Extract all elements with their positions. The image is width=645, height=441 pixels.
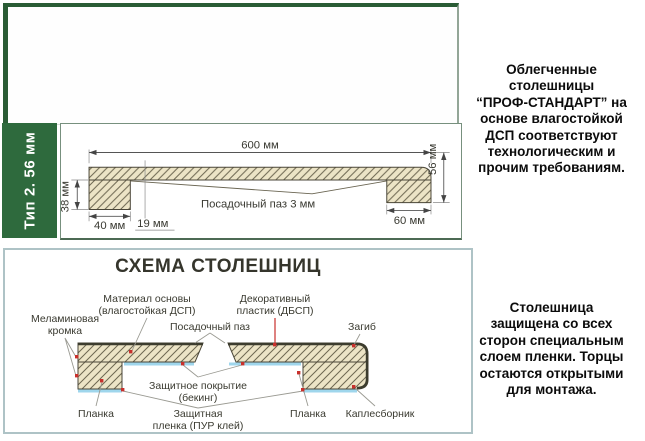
- label-decor-2: пластик (ДБСП): [236, 305, 313, 317]
- description-line: ДСП соответствуют: [460, 128, 643, 144]
- anchor-dot: [121, 388, 124, 391]
- label-base-2: (влагостойкая ДСП): [99, 305, 196, 317]
- leader-melamine: [65, 338, 76, 376]
- mounting-groove-lines: [130, 181, 386, 194]
- description-line: сторон специальным: [460, 333, 643, 349]
- label-melamine-2: кромка: [48, 325, 82, 337]
- description-line: Облегченные: [460, 62, 643, 78]
- label-base-1: Материал основы: [103, 293, 190, 305]
- label-decor-1: Декоративный: [240, 293, 311, 305]
- page: Тип 2. 56 мм 600 мм: [0, 0, 645, 441]
- label-bend: Загиб: [348, 321, 376, 333]
- dim-19-label: 19 мм: [137, 218, 168, 230]
- label-drip: Каплесборник: [346, 408, 415, 420]
- anchor-dot: [352, 385, 355, 388]
- label-film-1: Защитная: [174, 408, 223, 420]
- anchor-dot: [129, 350, 132, 353]
- label-film-2: пленка (ПУР клей): [153, 420, 244, 432]
- label-groove: Посадочный паз: [170, 321, 250, 333]
- description-line: защищена со всех: [460, 316, 643, 332]
- description-bottom: Столешница защищена со всех сторон специ…: [460, 300, 643, 398]
- description-line: “ПРОФ-СТАНДАРТ” на: [460, 95, 643, 111]
- top-left-empty-panel: [3, 3, 459, 125]
- dim-40-label: 40 мм: [94, 220, 125, 232]
- label-backing-1: Защитное покрытие: [149, 380, 247, 392]
- leader-backing: [183, 365, 242, 377]
- anchor-dot: [100, 379, 103, 382]
- description-line: основе влагостойкой: [460, 111, 643, 127]
- dim-60-label: 60 мм: [394, 215, 425, 227]
- countertop-profile-drawing: 600 мм 56 мм 38 мм 40 мм 19 мм 6: [61, 124, 461, 237]
- dim-56-label: 56 мм: [427, 144, 439, 175]
- type-label-bar: Тип 2. 56 мм: [2, 123, 57, 238]
- scheme-right-piece: [228, 343, 368, 389]
- description-line: Столешница: [460, 300, 643, 316]
- dim-600-label: 600 мм: [241, 140, 279, 152]
- anchor-dot: [273, 343, 276, 346]
- leader-groove: [195, 333, 225, 343]
- type-label: Тип 2. 56 мм: [21, 132, 38, 230]
- label-backing-2: (бекинг): [179, 392, 218, 404]
- anchor-dot: [301, 388, 304, 391]
- description-line: для монтажа.: [460, 382, 643, 398]
- anchor-dot: [181, 362, 184, 365]
- dim-38-label: 38 мм: [61, 181, 71, 212]
- leader-drip: [355, 388, 375, 406]
- description-top: Облегченные столешницы “ПРОФ-СТАНДАРТ” н…: [460, 62, 643, 177]
- description-line: технологическим и: [460, 144, 643, 160]
- description-line: столешницы: [460, 78, 643, 94]
- countertop-profile-panel: 600 мм 56 мм 38 мм 40 мм 19 мм 6: [60, 123, 462, 240]
- label-strip-right: Планка: [290, 408, 326, 420]
- label-strip-left: Планка: [78, 408, 114, 420]
- anchor-dot: [75, 355, 78, 358]
- scheme-panel: СХЕМА СТОЛЕШНИЦ: [3, 248, 473, 434]
- scheme-drawing: Меламиновая кромка Материал основы (влаг…: [5, 250, 471, 432]
- label-melamine-1: Меламиновая: [31, 313, 99, 325]
- anchor-dot: [297, 371, 300, 374]
- anchor-dot: [352, 344, 355, 347]
- anchor-dot: [241, 362, 244, 365]
- groove-note: Посадочный паз 3 мм: [201, 199, 315, 211]
- description-line: слоем пленки. Торцы: [460, 349, 643, 365]
- anchor-dot: [75, 374, 78, 377]
- description-line: прочим требованиям.: [460, 160, 643, 176]
- description-line: остаются открытыми: [460, 366, 643, 382]
